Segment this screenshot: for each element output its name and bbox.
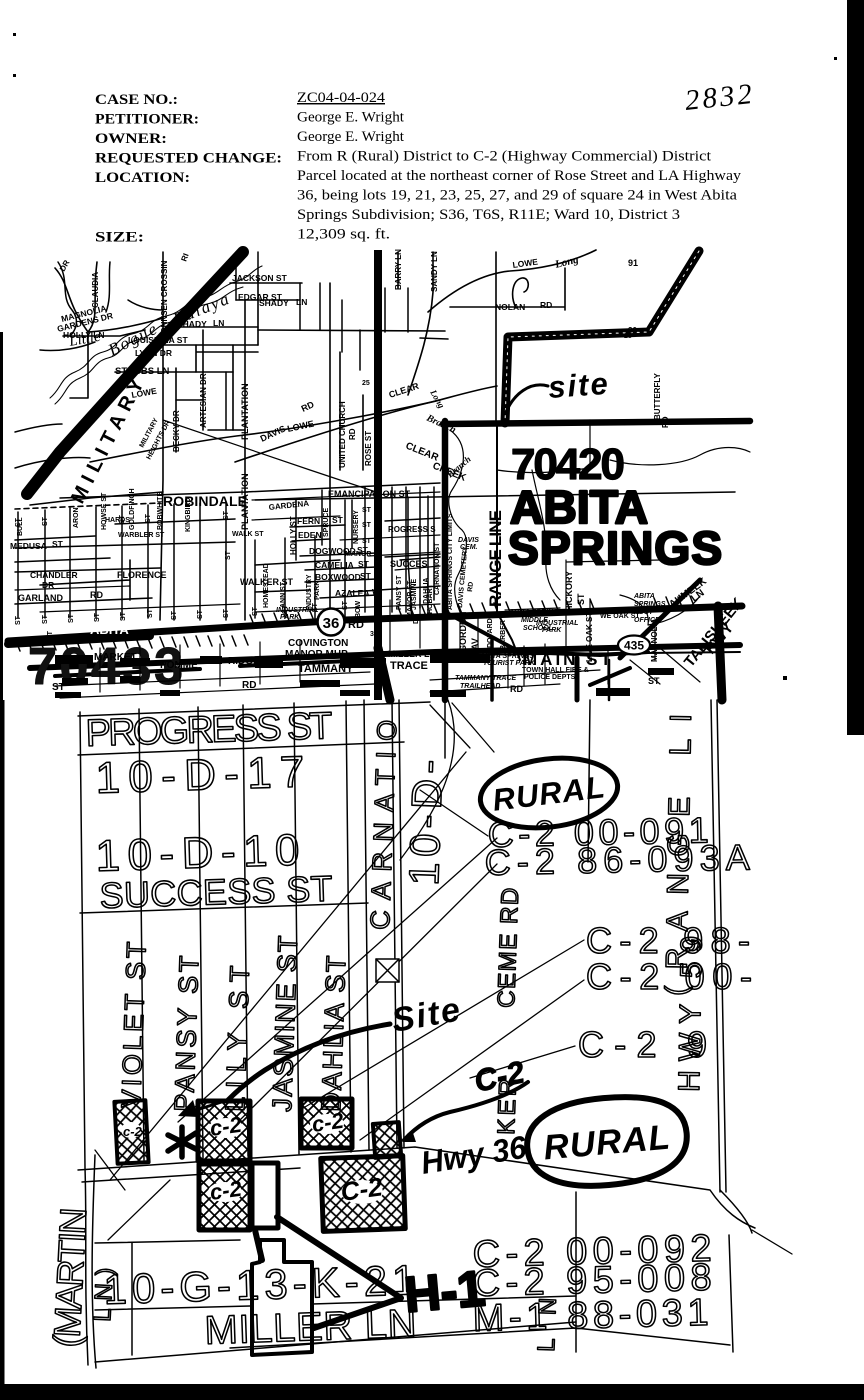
svg-text:LN: LN [213,318,224,328]
svg-text:ABITA: ABITA [90,622,129,637]
svg-text:SHADY: SHADY [177,319,207,329]
svg-text:ST: ST [42,516,49,526]
svg-text:HOMESTEAD: HOMESTEAD [263,563,270,608]
svg-text:SIZE:: SIZE: [95,230,144,246]
svg-text:c-2: c-2 [208,1176,244,1205]
svg-text:RD: RD [242,680,256,691]
svg-text:BARBER: BARBER [500,620,507,650]
svg-text:ST: ST [576,593,586,605]
svg-text:RD: RD [510,684,523,694]
svg-text:(RANGE LI: (RANGE LI [660,712,698,997]
svg-text:BOW: BOW [355,601,362,619]
svg-text:36: 36 [323,615,340,632]
svg-text:PARK: PARK [314,581,321,600]
svg-text:RD: RD [348,619,364,631]
svg-text:ST: ST [147,608,154,618]
svg-text:ST: ST [52,539,64,549]
svg-text:BOBWHITE: BOBWHITE [157,492,164,530]
svg-text:NOLAN: NOLAN [495,302,525,312]
svg-text:BOXWOOD: BOXWOOD [315,572,361,582]
svg-text:RD: RD [90,590,103,600]
svg-text:REQUESTED CHANGE:: REQUESTED CHANGE: [95,151,282,167]
svg-text:C-2 86-093A: C-2 86-093A [484,836,752,883]
svg-text:91: 91 [628,258,638,268]
svg-text:LIVE OAK ST: LIVE OAK ST [585,612,594,662]
svg-text:SPRINGS: SPRINGS [508,522,722,574]
svg-text:PARK: PARK [280,614,300,621]
svg-text:ST: ST [223,608,230,618]
svg-text:MAGNOLIA: MAGNOLIA [650,618,659,662]
svg-text:HOLLY LN: HOLLY LN [63,330,105,340]
svg-text:DAVIS: DAVIS [458,537,479,544]
svg-text:CLAUDIA: CLAUDIA [91,272,100,308]
svg-text:Springs Subdivision; S36, T6S,: Springs Subdivision; S36, T6S, R11E; War… [297,207,680,223]
svg-text:RD: RD [540,300,552,310]
svg-text:RD: RD [661,416,670,428]
svg-text:TOURIST PARK: TOURIST PARK [483,660,536,667]
svg-text:CHANDLER: CHANDLER [30,570,78,580]
svg-text:ST: ST [252,606,259,616]
svg-text:JACKSON ST: JACKSON ST [232,273,288,283]
svg-text:COVINGTON: COVINGTON [288,638,348,649]
svg-text:HOBART: HOBART [427,583,434,614]
svg-text:PANSY ST: PANSY ST [396,575,403,610]
svg-text:POMME: POMME [160,660,198,671]
svg-text:ST: ST [15,517,22,527]
svg-text:ST: ST [68,613,75,623]
svg-text:SPRUCE: SPRUCE [323,507,330,537]
svg-text:PLANTATION: PLANTATION [240,383,250,440]
svg-text:TRACE: TRACE [390,660,428,672]
svg-text:INDUSTRIAL: INDUSTRIAL [536,620,578,627]
svg-text:ST: ST [282,604,289,614]
svg-text:CAMELIA: CAMELIA [315,560,354,570]
svg-text:ST: ST [362,522,372,529]
svg-text:ST: ST [362,507,372,514]
svg-text:RD: RD [467,581,475,592]
svg-text:c-2: c-2 [123,1124,143,1139]
svg-text:ST: ST [94,612,101,622]
svg-text:RD: RD [348,428,357,440]
svg-text:ST: ST [197,609,204,619]
svg-text:WARBLER ST: WARBLER ST [118,532,165,539]
svg-text:435: 435 [624,639,644,653]
svg-text:DR: DR [413,614,420,624]
svg-text:JOHNSEN CROSSIN: JOHNSEN CROSSIN [160,260,169,338]
svg-text:SUCCESS ST: SUCCESS ST [99,868,335,916]
svg-text:ST: ST [648,676,660,686]
svg-text:PARK: PARK [542,627,562,634]
svg-text:PLANTATION: PLANTATION [240,473,250,530]
svg-text:ST: ST [171,610,178,620]
svg-text:OWNER:: OWNER: [95,131,167,147]
svg-text:MILLER LN: MILLER LN [388,649,436,659]
svg-text:W: W [372,587,381,597]
svg-text:AZALEA: AZALEA [335,588,369,598]
svg-text:GOLDFINCH: GOLDFINCH [129,488,136,530]
svg-text:DOYARD: DOYARD [487,618,494,648]
svg-text:GARLAND: GARLAND [18,593,63,603]
svg-text:36: 36 [370,631,378,638]
svg-text:(MARTIN: (MARTIN [46,1204,94,1348]
svg-text:LYNN DR: LYNN DR [135,348,172,358]
svg-text:BARRY LN: BARRY LN [394,249,403,290]
svg-text:ROGRESS S: ROGRESS S [388,525,436,534]
svg-text:STUBBS LN: STUBBS LN [115,366,170,377]
svg-text:HICKORY: HICKORY [564,571,574,612]
svg-text:BECKY DR: BECKY DR [172,410,181,452]
svg-text:KINGBIRD: KINGBIRD [185,497,192,532]
svg-text:SHADY: SHADY [259,298,289,308]
svg-text:WALK ST: WALK ST [232,531,264,538]
svg-text:MANOR: MANOR [345,551,371,558]
svg-text:LN): LN) [89,1265,119,1322]
svg-text:POLICE DEPTS.: POLICE DEPTS. [524,674,577,681]
svg-text:SPRINGS: SPRINGS [634,601,666,608]
svg-text:CEME RD: CEME RD [493,885,524,1008]
svg-text:ABITA: ABITA [633,593,655,600]
svg-text:ST: ST [120,611,127,621]
svg-text:CASE NO.:: CASE NO.: [95,92,178,108]
svg-text:ANN ST: ANN ST [280,581,287,608]
svg-text:LOCATION:: LOCATION: [95,170,190,186]
svg-text:UNITED CHURCH: UNITED CHURCH [338,401,347,468]
svg-text:ARON: ARON [73,507,80,528]
svg-text:c-2: c-2 [310,1108,346,1137]
svg-text:RANGE LINE: RANGE LINE [486,510,505,607]
svg-text:30: 30 [628,326,637,335]
svg-text:H-1: H-1 [402,1260,487,1323]
svg-text:ABITA SPRINGS CITY LIMITS: ABITA SPRINGS CITY LIMITS [447,513,454,610]
svg-text:CARNATION ST: CARNATION ST [434,542,441,595]
svg-text:c-2: c-2 [208,1112,244,1141]
svg-text:ABITA SPRINGS: ABITA SPRINGS [508,609,563,616]
svg-text:HOLLY ST: HOLLY ST [289,516,298,555]
svg-text:ST: ST [225,550,232,560]
svg-text:ARTESIAN DR: ARTESIAN DR [199,373,208,428]
svg-text:George E. Wright: George E. Wright [297,110,404,126]
svg-text:12,309 sq. ft.: 12,309 sq. ft. [297,227,390,243]
svg-text:site: site [547,366,611,405]
svg-text:ST: ST [358,559,370,569]
svg-text:MANOR MHP: MANOR MHP [285,649,348,660]
svg-text:From R (Rural) District to C-2: From R (Rural) District to C-2 (Highway … [297,149,711,165]
svg-text:ST: ST [52,682,65,693]
svg-text:SANDY LN: SANDY LN [430,251,439,292]
svg-text:ST: ST [312,602,319,612]
svg-text:LOUISIANA ST: LOUISIANA ST [128,335,188,345]
svg-text:JASMINE ST: JASMINE ST [267,933,303,1112]
svg-text:FLORENCE: FLORENCE [117,570,167,580]
svg-text:25: 25 [362,380,370,387]
svg-text:George E. Wright: George E. Wright [297,129,404,145]
svg-text:ST: ST [145,513,152,523]
svg-text:Parcel located at the northeas: Parcel located at the northeast corner o… [297,168,742,184]
svg-text:36, being lots 19, 21, 23, 25,: 36, being lots 19, 21, 23, 25, 27, and 2… [297,188,738,204]
svg-text:ST: ST [15,615,22,625]
svg-text:PETITIONER:: PETITIONER: [95,112,199,128]
svg-text:ST: ST [223,510,230,520]
svg-text:MEDUSA: MEDUSA [10,541,47,551]
svg-text:HOWSE ST: HOWSE ST [101,492,108,530]
svg-text:ZC04-04-024: ZC04-04-024 [297,90,386,106]
svg-text:EDEN: EDEN [298,530,322,540]
svg-text:PANSY ST: PANSY ST [169,953,204,1112]
svg-text:VIOLET ST: VIOLET ST [116,939,152,1108]
svg-text:C-2: C-2 [339,1171,385,1207]
svg-text:ST: ST [47,630,54,640]
svg-text:ST: ST [360,571,372,581]
svg-text:ROBINDALE: ROBINDALE [163,493,247,509]
svg-text:HARDS: HARDS [105,517,130,524]
svg-text:ROSE ST: ROSE ST [364,431,373,466]
svg-text:LN: LN [296,297,307,307]
svg-text:ST: ST [42,614,49,624]
svg-text:WE OAK ST: WE OAK ST [600,613,640,620]
svg-text:BUTTERFLY: BUTTERFLY [653,373,662,420]
